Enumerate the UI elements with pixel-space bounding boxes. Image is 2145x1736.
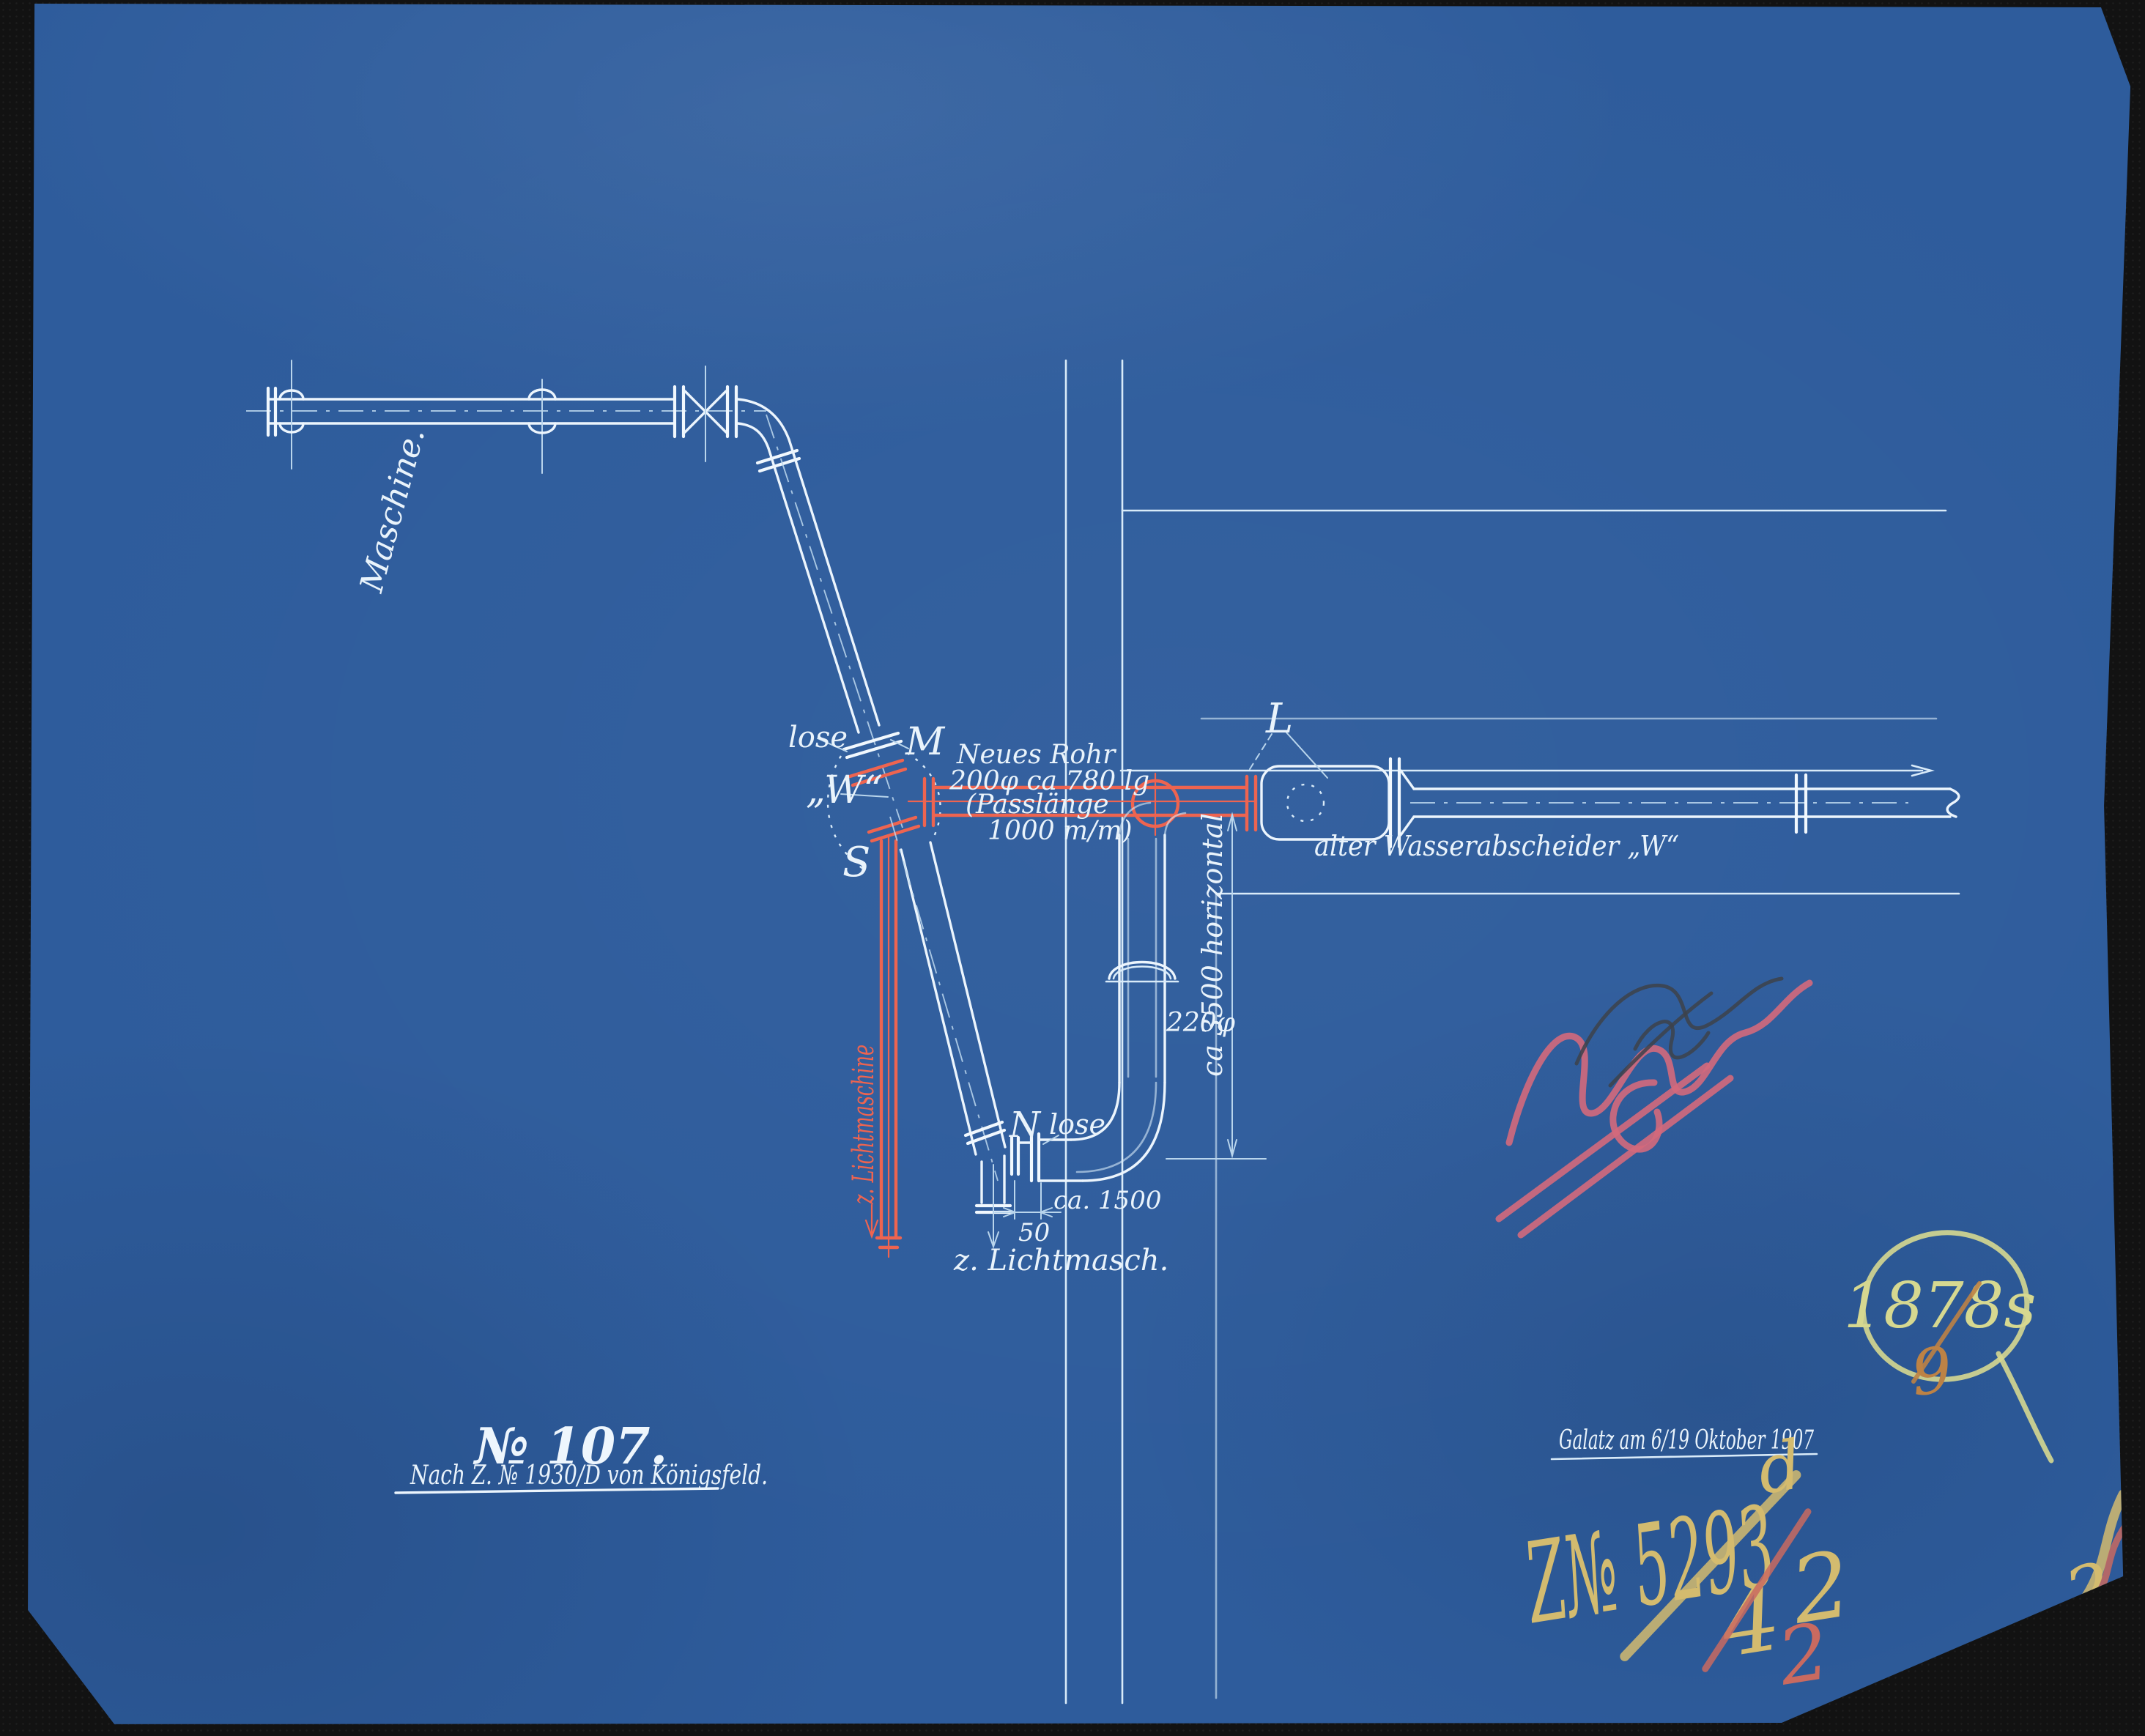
title-block: № 107. Nach Z. № 1930/D von Königsfeld. (396, 1417, 768, 1493)
corner-marks: 2 (1919, 1494, 2126, 1672)
label-point-s: S (842, 839, 870, 886)
label-maschine: Maschine. (352, 424, 432, 597)
label-point-l: L (1265, 695, 1293, 743)
inventory-stamp: 1878s 9 (1844, 1223, 2052, 1461)
stamp-digit-9: 9 (1908, 1334, 1956, 1411)
separator-body (1262, 766, 1389, 839)
gate-valve (675, 366, 736, 461)
label-pipe-220: 220φ (1166, 1008, 1236, 1038)
machine-pipe (246, 360, 903, 828)
label-lose-top: lose (788, 721, 848, 754)
label-new-pipe-3: (Passlänge (966, 790, 1109, 820)
piping-drawing: Maschine. lose M „W“ S Neues Rohr 200φ c… (0, 0, 2145, 1736)
label-new-pipe-4: 1000 m/m) (988, 816, 1133, 846)
label-lose-bottom: lose (1049, 1108, 1105, 1140)
annotations: Maschine. lose M „W“ S Neues Rohr 200φ c… (352, 424, 1679, 1277)
pipe-break-icon (1947, 789, 1959, 817)
label-point-n: N (1009, 1105, 1042, 1146)
label-new-pipe-1: Neues Rohr (956, 740, 1116, 770)
registry-number-mark: Z№ 5293 d 4 2 2 (1508, 1421, 1867, 1736)
crayon-marks: 1878s 9 Z№ 5293 d 4 2 2 (1499, 979, 2126, 1736)
label-old-separator: alter Wasserabscheider „W“ (1314, 830, 1679, 862)
label-to-lightmachine-red: z. Lichtmaschine (847, 1045, 881, 1205)
stamp-number: 1878s (1844, 1269, 2037, 1343)
lower-pipe-branch (890, 817, 1083, 1247)
photo-backdrop: Maschine. lose M „W“ S Neues Rohr 200φ c… (0, 0, 2145, 1736)
label-point-w: „W“ (806, 768, 883, 812)
separator-drain-circle (1287, 784, 1324, 821)
label-point-m: M (905, 720, 946, 764)
label-dim-1500: ca. 1500 (1053, 1186, 1161, 1215)
red-crayon-signature (1499, 979, 1809, 1235)
label-dim-50: 50 (1018, 1218, 1050, 1247)
red-arrow-down-icon (866, 1205, 878, 1236)
blueprint-sheet: Maschine. lose M „W“ S Neues Rohr 200φ c… (0, 0, 2145, 1736)
label-to-lightmachine: z. Lichtmasch. (953, 1244, 1168, 1277)
drawing-reference: Nach Z. № 1930/D von Königsfeld. (410, 1461, 768, 1491)
